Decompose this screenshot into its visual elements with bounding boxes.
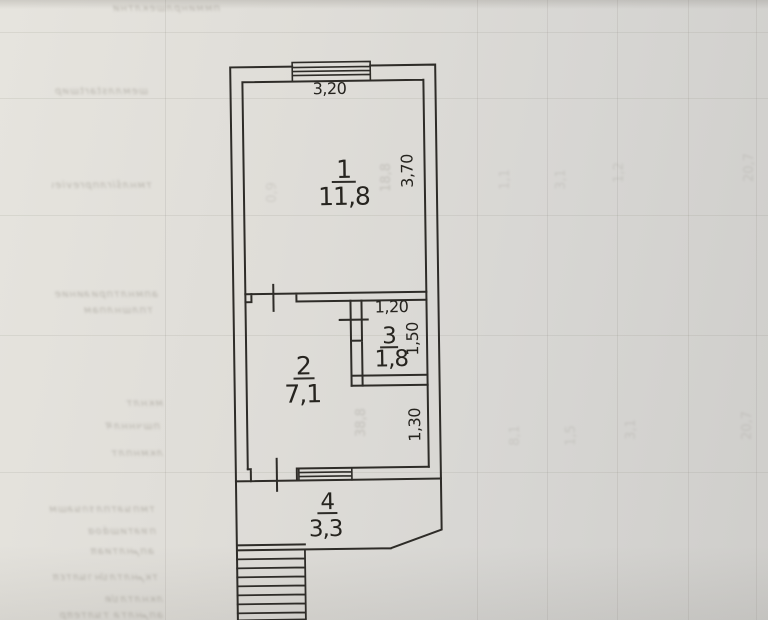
floor-plan-drawing: 3,20 3,70 1 11,8 2 7,1 1,20 3 1,8 1,50 1…	[0, 0, 768, 620]
dimension-room1-width: 3,20	[313, 79, 347, 98]
dimension-room1-depth: 3,70	[397, 154, 416, 188]
scanned-floorplan-photo: пмминрлшеклтни шемллstartшир тмнлširлпpr…	[0, 0, 768, 620]
floor-plan: 3,20 3,70 1 11,8 2 7,1 1,20 3 1,8 1,50 1…	[0, 0, 768, 620]
dimension-passage-width: 1,30	[405, 408, 424, 442]
dimension-room3-width: 1,20	[375, 297, 409, 316]
stairs-symbol	[237, 549, 306, 620]
room3-left-wall	[350, 301, 362, 386]
window-symbol-bottom	[299, 468, 352, 481]
room2-area-label: 7,1	[284, 379, 321, 409]
room4-outline	[236, 479, 443, 620]
room1-number-label: 1	[336, 155, 351, 184]
dimension-room3-depth: 1,50	[403, 322, 422, 356]
room4-number-label: 4	[320, 489, 334, 515]
room1-area-label: 11,8	[318, 181, 370, 211]
room2-number-label: 2	[296, 351, 311, 380]
inner-wall-lines	[242, 80, 428, 469]
room4-area-label: 3,3	[309, 516, 343, 542]
